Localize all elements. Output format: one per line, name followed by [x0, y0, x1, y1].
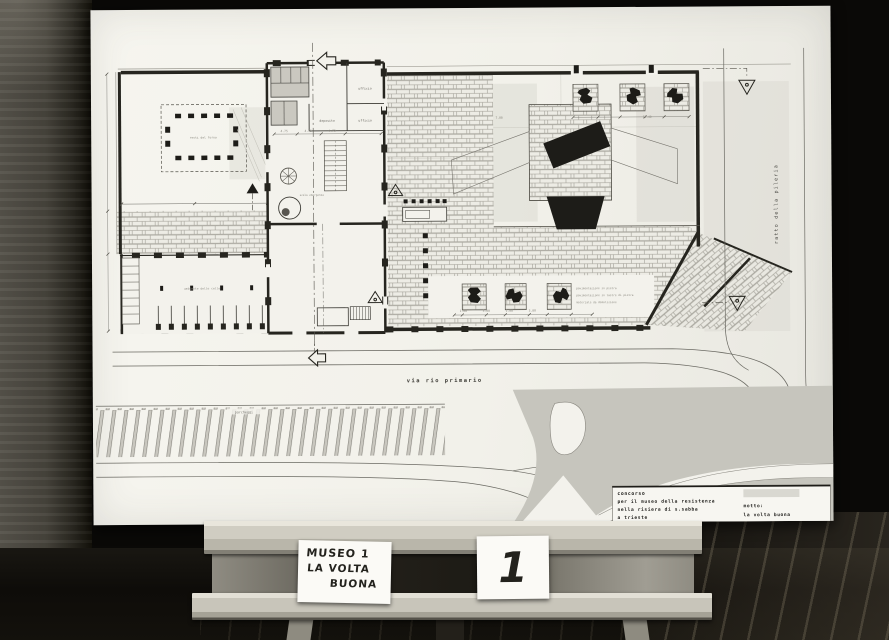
storage-label: deposito	[319, 119, 334, 123]
title-block: concorso per il museo della resistenza n…	[612, 485, 830, 524]
dim-label: 1.00	[506, 309, 513, 313]
office-label: ufficio	[358, 87, 372, 91]
entry-title-card: MUSEO 1 LA VOLTA BUONA	[297, 540, 391, 604]
section-arrow-bottom	[309, 350, 326, 366]
remains-label: resti del forno	[190, 135, 217, 139]
dim-label: 4.75	[281, 129, 288, 133]
dim-label: 4.75	[305, 129, 312, 133]
paving-note-2: pavimentazione in lastre di pietra	[576, 293, 634, 297]
competition-title-line3: nella risiera di s.sabba	[617, 507, 698, 513]
competition-title-line2: per il museo della resistenza	[617, 498, 715, 505]
room-wall	[0, 0, 92, 640]
competition-title-line1: concorso	[617, 492, 645, 497]
easel-leg-left	[286, 618, 313, 640]
card-line-museo: MUSEO 1	[306, 545, 392, 563]
site-plan-drawing: resti del forno	[90, 6, 833, 526]
parking-label: parcheggi	[235, 410, 253, 414]
side-street-label: ratto della pileria	[773, 164, 779, 244]
left-dimension-line	[105, 73, 110, 333]
stamp-area	[743, 489, 799, 497]
dim-label: 4.75	[329, 129, 336, 133]
entrance-building: ufficio ufficio deposito scala emergenza	[267, 42, 386, 361]
motto-value: la volta buona	[744, 512, 791, 518]
motto-label: motto:	[743, 503, 763, 509]
presentation-board: resti del forno	[90, 6, 833, 526]
easel-leg-right	[622, 618, 649, 640]
entry-number-card: 1	[477, 536, 550, 600]
sculpture-pedestals-top	[573, 84, 689, 112]
north-arrow-icon	[246, 183, 258, 210]
dim-label: 3.00	[529, 309, 536, 313]
spiral-stair	[280, 168, 296, 184]
office-label-2: ufficio	[358, 119, 372, 123]
easel-shelf-shadow	[212, 554, 694, 595]
easel-top-rail	[204, 521, 702, 554]
emergency-stair-label: scala emergenza	[300, 193, 325, 197]
paving-note-3: materiale da demolizione	[576, 300, 617, 304]
entry-number: 1	[498, 546, 528, 588]
dim-label: 7.00	[495, 116, 502, 120]
dim-label: 13.40	[643, 115, 652, 119]
photo-of-competition-board: resti del forno	[0, 0, 889, 640]
dim-label: 1.00	[460, 309, 467, 313]
paving-note-1: pavimentazione in pietra	[576, 286, 617, 290]
easel-bottom-rail	[192, 593, 712, 620]
card-line-la-volta: LA VOLTA	[306, 561, 391, 578]
cells-building: ambiente delle celle	[120, 253, 280, 334]
dim-label: 3.00	[483, 309, 490, 313]
partition-feet	[156, 323, 265, 330]
street-label: via rio primario	[407, 378, 483, 384]
cells-label: ambiente delle celle	[184, 286, 220, 290]
card-line-buona: BUONA	[329, 577, 391, 593]
sculpture-block	[547, 196, 605, 229]
